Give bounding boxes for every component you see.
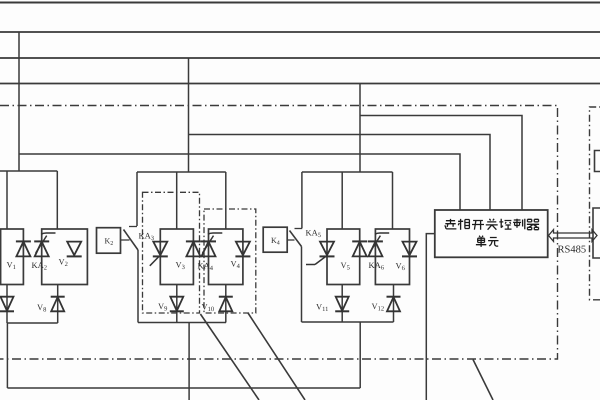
svg-text:V4: V4	[231, 259, 241, 271]
svg-text:V5: V5	[341, 260, 350, 272]
svg-text:K4: K4	[271, 236, 280, 246]
svg-text:V12: V12	[372, 301, 385, 313]
svg-text:V10: V10	[202, 302, 215, 314]
svg-text:V8: V8	[37, 302, 46, 314]
svg-text:V2: V2	[59, 257, 68, 269]
svg-text:V1: V1	[7, 260, 16, 272]
svg-text:KA5: KA5	[306, 228, 322, 240]
svg-text:KA4: KA4	[198, 261, 214, 273]
svg-text:RS485: RS485	[558, 245, 587, 256]
svg-text:KA3: KA3	[139, 231, 155, 243]
svg-text:KA2: KA2	[32, 260, 48, 272]
svg-text:K2: K2	[105, 237, 114, 247]
svg-text:KA6: KA6	[369, 260, 385, 272]
svg-text:V6: V6	[396, 261, 406, 273]
svg-text:V9: V9	[158, 301, 167, 313]
svg-text:V11: V11	[316, 302, 328, 314]
svg-text:V3: V3	[176, 260, 185, 272]
